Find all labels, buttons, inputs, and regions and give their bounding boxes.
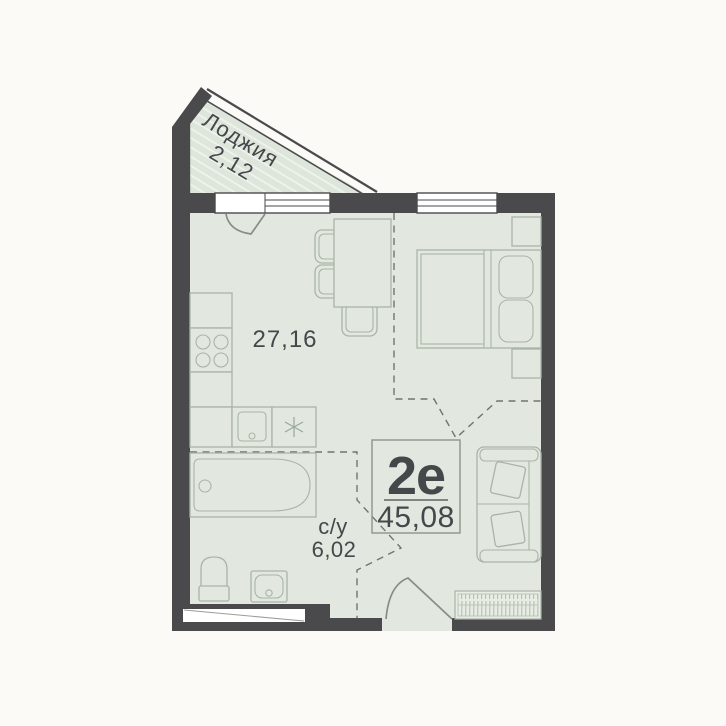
toilet-icon bbox=[199, 557, 229, 601]
unit-total-area: 45,08 bbox=[377, 501, 455, 534]
sofa-icon bbox=[477, 447, 541, 562]
balcony-door-window bbox=[215, 193, 330, 213]
bathtub-icon bbox=[190, 453, 316, 517]
window-frame bbox=[417, 193, 497, 213]
kitchen-sink-icon bbox=[232, 407, 272, 447]
wall-left bbox=[172, 193, 190, 631]
living-kitchen-area-label: 27,16 bbox=[252, 326, 317, 353]
washbasin-icon bbox=[251, 571, 287, 602]
bed-icon bbox=[417, 250, 541, 348]
sofa-pillow bbox=[491, 511, 526, 547]
fridge-icon bbox=[272, 407, 316, 447]
nightstand bbox=[512, 349, 541, 378]
kitchen-corner-counter bbox=[190, 407, 232, 447]
wardrobe-icon bbox=[455, 591, 541, 619]
loggia bbox=[172, 87, 377, 196]
stove-icon bbox=[190, 328, 232, 372]
sofa-pillow bbox=[490, 461, 526, 499]
bedroom-window bbox=[417, 193, 497, 213]
bathroom-name-label: с/у bbox=[318, 514, 348, 539]
bathroom-area-label: 6,02 bbox=[312, 537, 357, 562]
unit-type-label: 2е bbox=[387, 446, 445, 506]
dining-table bbox=[334, 219, 391, 307]
wall-bottom-left-of-door bbox=[330, 618, 382, 631]
wall-top-middle bbox=[330, 193, 417, 213]
kitchen-counter-top bbox=[190, 293, 232, 328]
floor-plan: 2е 45,08 27,16 с/у 6,02 Лоджия 2,12 bbox=[0, 0, 726, 726]
floor-plan-canvas: 2е 45,08 27,16 с/у 6,02 Лоджия 2,12 bbox=[0, 0, 726, 726]
vent-shaft bbox=[183, 609, 305, 622]
wall-bottom-right-of-door bbox=[452, 618, 555, 631]
wall-right bbox=[541, 193, 555, 631]
nightstand bbox=[512, 217, 541, 246]
kitchen-counter bbox=[190, 372, 232, 407]
balcony-window-block bbox=[215, 193, 330, 213]
